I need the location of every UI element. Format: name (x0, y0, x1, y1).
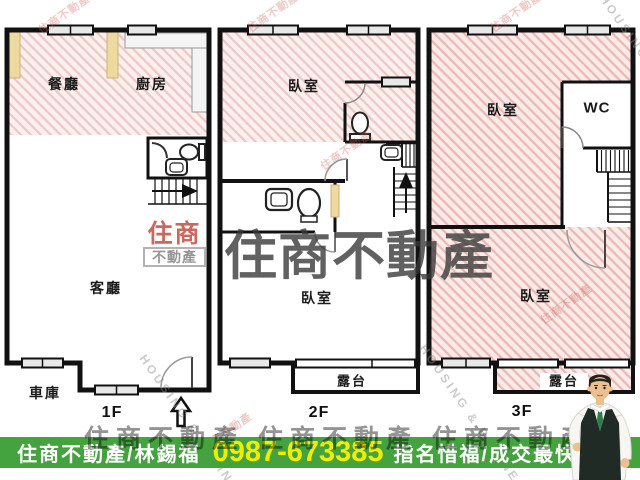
room-label-living: 客廳 (90, 278, 122, 298)
room-label-kitchen: 廚房 (136, 74, 168, 94)
brand-logo-top: 住商 (143, 221, 206, 247)
room-label-garage: 車庫 (29, 383, 61, 403)
floorplan-3f (429, 26, 633, 393)
floorplan-photo: 餐廳 廚房 客廳 車庫 1F 臥室 臥室 露台 2F 臥室 WC 臥室 露台 3… (0, 0, 640, 480)
brand-watermark-row: 住商不動產 住商不動產 住商不動產 (84, 419, 629, 455)
agent-photo (558, 371, 640, 480)
brand-logo-bottom: 不動產 (143, 247, 206, 267)
room-label-terrace-2f: 露台 (337, 371, 367, 390)
brand-watermark-large: 住商不動產 (224, 214, 494, 290)
brand-logo-watermark: 住商 不動產 (143, 221, 206, 267)
room-label-wc: WC (584, 100, 611, 117)
room-label-bedroom-2f-upper: 臥室 (288, 76, 320, 96)
room-label-bedroom-3f-upper: 臥室 (487, 100, 519, 120)
room-label-dining: 餐廳 (48, 74, 80, 94)
room-label-bedroom-2f-lower: 臥室 (301, 288, 333, 308)
room-label-bedroom-3f-lower: 臥室 (520, 286, 552, 306)
bathroom-1f (148, 138, 207, 178)
